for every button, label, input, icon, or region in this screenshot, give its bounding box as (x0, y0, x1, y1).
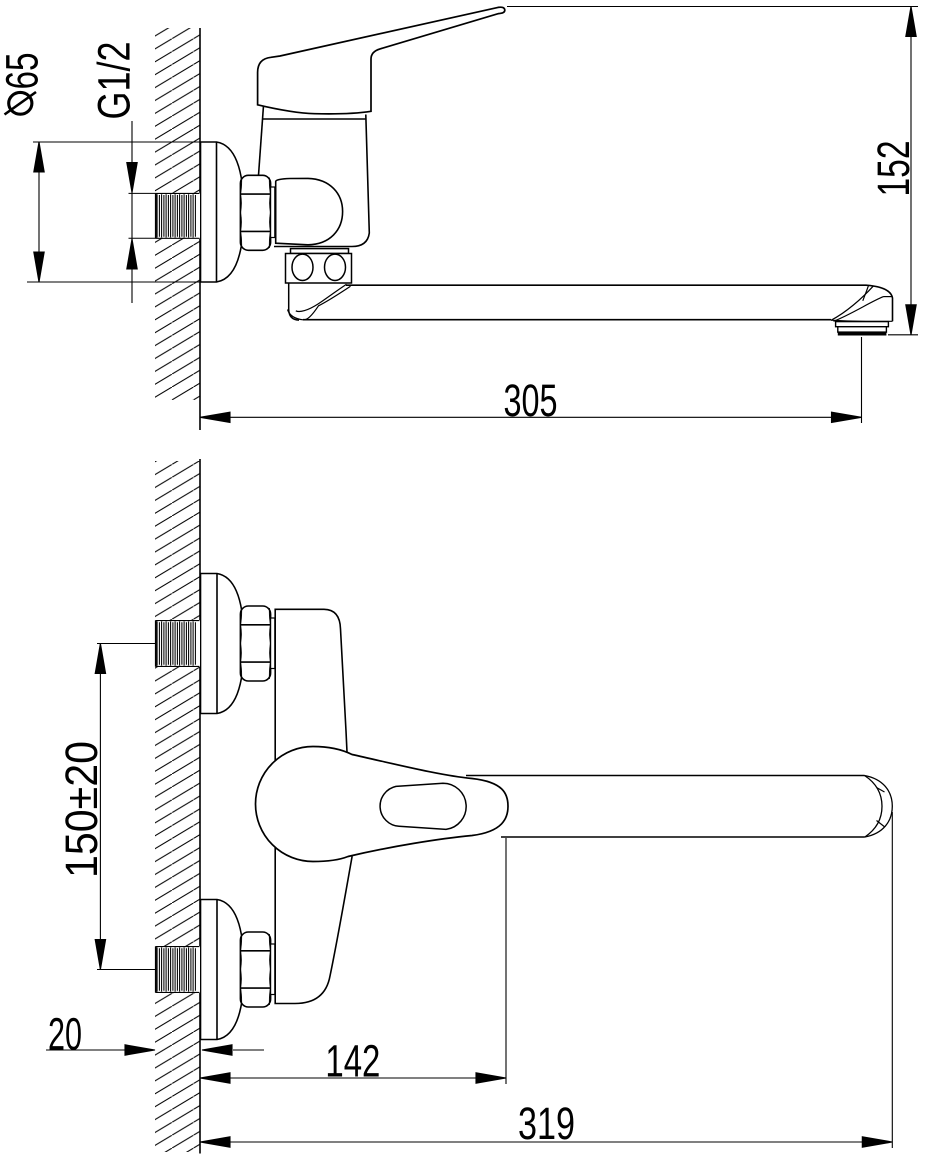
svg-text:152: 152 (868, 141, 919, 197)
svg-text:150±20: 150±20 (56, 741, 107, 878)
svg-text:142: 142 (325, 1036, 380, 1087)
svg-text:305: 305 (504, 375, 558, 426)
svg-text:20: 20 (48, 1009, 82, 1060)
svg-text:G1/2: G1/2 (89, 42, 140, 120)
svg-text:319: 319 (518, 1098, 575, 1149)
svg-text:65: 65 (0, 53, 48, 90)
